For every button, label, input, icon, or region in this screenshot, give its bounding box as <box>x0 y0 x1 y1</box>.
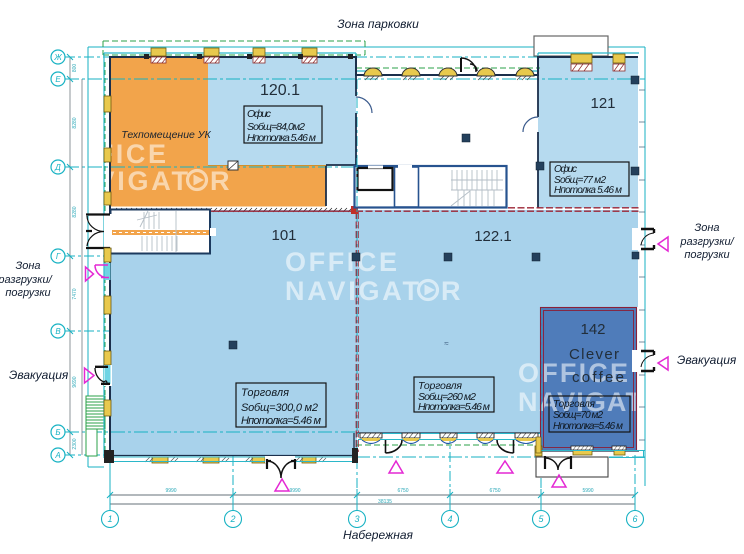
svg-text:погрузки: погрузки <box>5 287 50 299</box>
svg-text:121: 121 <box>590 95 615 112</box>
svg-text:Офис: Офис <box>554 163 577 175</box>
svg-text:6750: 6750 <box>397 488 408 494</box>
svg-text:120.1: 120.1 <box>260 82 300 99</box>
svg-text:Нпотолка=5.46 м: Нпотолка=5.46 м <box>418 401 490 413</box>
svg-text:3: 3 <box>354 514 359 524</box>
svg-text:Б: Б <box>55 428 60 437</box>
svg-text:R: R <box>441 276 461 306</box>
svg-text:2: 2 <box>229 514 235 524</box>
svg-text:погрузки: погрузки <box>684 249 729 261</box>
svg-text:9990: 9990 <box>289 488 300 494</box>
svg-text:Нпотолка 5.46 м: Нпотолка 5.46 м <box>247 132 316 144</box>
svg-text:Sобщ=70 м2: Sобщ=70 м2 <box>553 409 603 421</box>
svg-text:800: 800 <box>72 64 78 73</box>
svg-text:Нпотолка 5.46 м: Нпотолка 5.46 м <box>554 185 622 196</box>
svg-text:А: А <box>54 451 60 460</box>
svg-text:Clever: Clever <box>569 346 619 363</box>
svg-text:Sобщ=300,0 м2: Sобщ=300,0 м2 <box>241 402 318 414</box>
svg-text:В: В <box>55 327 61 336</box>
svg-text:Эвакуация: Эвакуация <box>9 368 69 382</box>
svg-text:разгрузки/: разгрузки/ <box>679 236 734 248</box>
svg-text:Зона: Зона <box>694 222 719 234</box>
svg-text:R: R <box>210 166 230 196</box>
svg-text:4: 4 <box>447 514 452 524</box>
svg-text:Ж: Ж <box>53 53 62 62</box>
svg-text:NAVIGAT: NAVIGAT <box>54 166 189 196</box>
svg-text:Эвакуация: Эвакуация <box>677 353 737 367</box>
svg-text:8280: 8280 <box>72 117 78 128</box>
svg-text:Зона парковки: Зона парковки <box>337 17 419 31</box>
svg-text:Техпомещение УК: Техпомещение УК <box>121 129 211 141</box>
svg-text:≈: ≈ <box>444 339 449 348</box>
svg-text:Зона: Зона <box>15 260 40 272</box>
svg-text:9990: 9990 <box>165 488 176 494</box>
svg-text:122.1: 122.1 <box>474 228 512 245</box>
svg-text:OFFICE: OFFICE <box>285 247 397 277</box>
svg-text:Нпотолка=5.46 м: Нпотолка=5.46 м <box>553 421 623 432</box>
svg-text:142: 142 <box>580 321 605 338</box>
svg-text:7470: 7470 <box>72 288 78 299</box>
svg-text:9690: 9690 <box>72 376 78 387</box>
svg-text:Офис: Офис <box>247 108 272 120</box>
svg-text:8280: 8280 <box>72 206 78 217</box>
svg-text:1: 1 <box>107 514 112 524</box>
svg-text:2300: 2300 <box>72 438 78 449</box>
svg-text:Торговля: Торговля <box>241 387 289 399</box>
svg-text:Е: Е <box>55 75 61 84</box>
svg-text:5990: 5990 <box>582 488 593 494</box>
svg-text:разгрузки/: разгрузки/ <box>0 274 53 286</box>
svg-text:6750: 6750 <box>489 488 500 494</box>
svg-text:Д: Д <box>54 163 61 172</box>
svg-text:Нпотолка=5.46 м: Нпотолка=5.46 м <box>241 415 321 427</box>
svg-text:38135: 38135 <box>378 499 392 505</box>
svg-text:101: 101 <box>271 227 296 244</box>
svg-text:Набережная: Набережная <box>343 528 414 542</box>
svg-text:Торговля: Торговля <box>553 399 596 410</box>
svg-text:6: 6 <box>632 514 637 524</box>
svg-text:Г: Г <box>56 252 61 261</box>
